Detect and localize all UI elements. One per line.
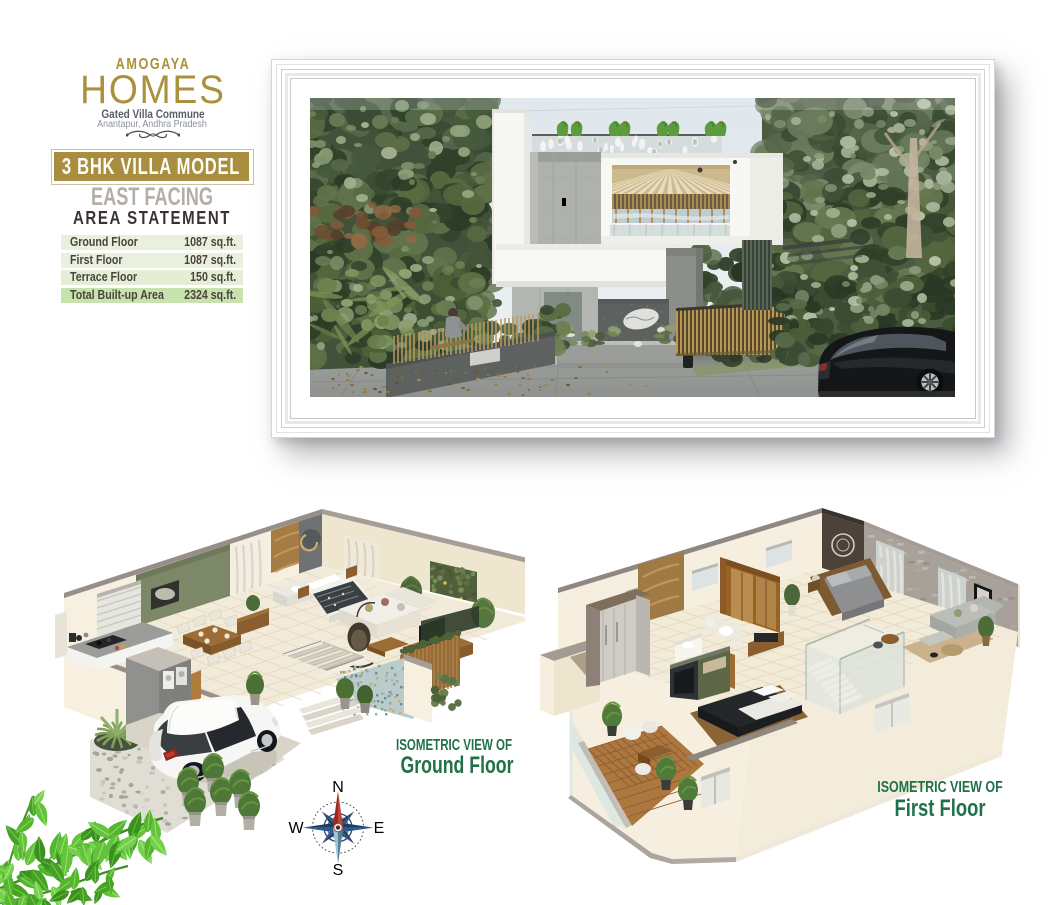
svg-text:S: S <box>333 862 344 879</box>
svg-text:N: N <box>332 779 344 796</box>
svg-text:E: E <box>374 820 385 837</box>
svg-text:W: W <box>288 820 304 837</box>
